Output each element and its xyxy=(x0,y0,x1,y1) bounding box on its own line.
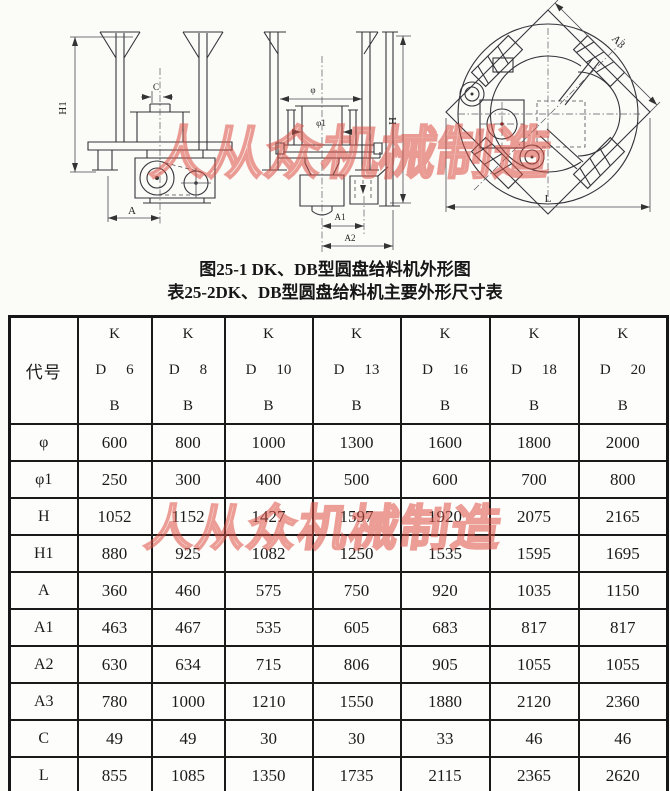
value-cell: 535 xyxy=(225,609,313,646)
value-cell: 800 xyxy=(152,424,225,461)
value-cell: 2075 xyxy=(490,498,579,535)
value-cell: 905 xyxy=(401,646,490,683)
value-cell: 1000 xyxy=(225,424,313,461)
value-cell: 605 xyxy=(313,609,401,646)
value-cell: 1350 xyxy=(225,757,313,791)
value-cell: 1427 xyxy=(225,498,313,535)
model-series-k: K xyxy=(153,326,224,343)
value-cell: 880 xyxy=(78,535,152,572)
value-cell: 920 xyxy=(401,572,490,609)
value-cell: 1735 xyxy=(313,757,401,791)
value-cell: 634 xyxy=(152,646,225,683)
table-row: H188092510821250153515951695 xyxy=(10,535,668,572)
model-series-k: K xyxy=(79,326,151,343)
model-size: 18 xyxy=(542,362,557,379)
model-header-cell: KD13B xyxy=(313,317,401,425)
value-cell: 1595 xyxy=(490,535,579,572)
row-label-cell: A xyxy=(10,572,78,609)
value-cell: 817 xyxy=(490,609,579,646)
model-series-d: D xyxy=(246,362,257,379)
table-row: H1052115214271597192020752165 xyxy=(10,498,668,535)
model-series-d: D xyxy=(422,362,433,379)
value-cell: 600 xyxy=(401,461,490,498)
model-series-b: B xyxy=(226,398,312,415)
value-cell: 2360 xyxy=(579,683,668,720)
table-row: φ1250300400500600700800 xyxy=(10,461,668,498)
row-label-cell: H xyxy=(10,498,78,535)
dim-label-h: H xyxy=(387,117,399,125)
dim-label-a1: A1 xyxy=(335,212,346,222)
model-series-b: B xyxy=(153,398,224,415)
model-size: 13 xyxy=(364,362,379,379)
top-view-drawing: A3 L xyxy=(446,0,660,214)
document-page: H1 C A φ φ1 H xyxy=(0,0,670,791)
value-cell: 1880 xyxy=(401,683,490,720)
value-cell: 30 xyxy=(225,720,313,757)
model-series-k: K xyxy=(314,326,400,343)
value-cell: 683 xyxy=(401,609,490,646)
value-cell: 1000 xyxy=(152,683,225,720)
value-cell: 1920 xyxy=(401,498,490,535)
value-cell: 1210 xyxy=(225,683,313,720)
dim-label-c: C xyxy=(153,82,159,92)
value-cell: 1150 xyxy=(579,572,668,609)
model-series-k: K xyxy=(226,326,312,343)
value-cell: 500 xyxy=(313,461,401,498)
front-view-drawing: H1 C A xyxy=(57,32,232,224)
value-cell: 575 xyxy=(225,572,313,609)
value-cell: 1550 xyxy=(313,683,401,720)
side-view-drawing: φ φ1 H A1 A2 xyxy=(262,32,411,254)
model-size: 16 xyxy=(453,362,468,379)
row-label-cell: C xyxy=(10,720,78,757)
table-caption: 表25-2DK、DB型圆盘给料机主要外形尺寸表 xyxy=(0,281,670,304)
value-cell: 1695 xyxy=(579,535,668,572)
model-series-d: D xyxy=(600,362,611,379)
value-cell: 1535 xyxy=(401,535,490,572)
value-cell: 1085 xyxy=(152,757,225,791)
value-cell: 33 xyxy=(401,720,490,757)
table-row: C49493030334646 xyxy=(10,720,668,757)
model-series-d: D xyxy=(95,362,106,379)
table-row: A3780100012101550188021202360 xyxy=(10,683,668,720)
value-cell: 1600 xyxy=(401,424,490,461)
value-cell: 630 xyxy=(78,646,152,683)
row-label-cell: L xyxy=(10,757,78,791)
model-header-cell: KD16B xyxy=(401,317,490,425)
model-series-b: B xyxy=(580,398,667,415)
value-cell: 2120 xyxy=(490,683,579,720)
value-cell: 1250 xyxy=(313,535,401,572)
table-row: L855108513501735211523652620 xyxy=(10,757,668,791)
dim-label-h1: H1 xyxy=(57,101,69,114)
model-series-k: K xyxy=(580,326,667,343)
table-header-row: 代号 KD6BKD8BKD10BKD13BKD16BKD18BKD20B xyxy=(10,317,668,425)
dim-label-a2: A2 xyxy=(345,233,356,243)
value-cell: 1800 xyxy=(490,424,579,461)
value-cell: 1035 xyxy=(490,572,579,609)
value-cell: 49 xyxy=(152,720,225,757)
value-cell: 46 xyxy=(579,720,668,757)
value-cell: 360 xyxy=(78,572,152,609)
model-size: 20 xyxy=(631,362,646,379)
model-series-d: D xyxy=(334,362,345,379)
value-cell: 806 xyxy=(313,646,401,683)
value-cell: 715 xyxy=(225,646,313,683)
value-cell: 30 xyxy=(313,720,401,757)
value-cell: 1082 xyxy=(225,535,313,572)
dim-label-phi: φ xyxy=(310,85,315,95)
figure-caption: 图25-1 DK、DB型圆盘给料机外形图 xyxy=(0,258,670,281)
table-row: A263063471580690510551055 xyxy=(10,646,668,683)
value-cell: 1055 xyxy=(579,646,668,683)
row-label-cell: φ xyxy=(10,424,78,461)
dimensions-table: 代号 KD6BKD8BKD10BKD13BKD16BKD18BKD20B φ60… xyxy=(8,315,669,791)
model-series-k: K xyxy=(402,326,489,343)
value-cell: 2165 xyxy=(579,498,668,535)
model-series-b: B xyxy=(79,398,151,415)
model-series-d: D xyxy=(511,362,522,379)
value-cell: 1300 xyxy=(313,424,401,461)
model-series-k: K xyxy=(491,326,578,343)
value-cell: 800 xyxy=(579,461,668,498)
row-label-cell: A3 xyxy=(10,683,78,720)
value-cell: 700 xyxy=(490,461,579,498)
captions: 图25-1 DK、DB型圆盘给料机外形图 表25-2DK、DB型圆盘给料机主要外… xyxy=(0,258,670,304)
value-cell: 46 xyxy=(490,720,579,757)
dim-label-phi1: φ1 xyxy=(316,118,326,128)
value-cell: 400 xyxy=(225,461,313,498)
model-series-d: D xyxy=(169,362,180,379)
value-cell: 817 xyxy=(579,609,668,646)
machine-frame xyxy=(262,32,400,206)
value-cell: 1152 xyxy=(152,498,225,535)
value-cell: 2365 xyxy=(490,757,579,791)
code-header-cell: 代号 xyxy=(10,317,78,425)
value-cell: 460 xyxy=(152,572,225,609)
value-cell: 750 xyxy=(313,572,401,609)
value-cell: 1055 xyxy=(490,646,579,683)
model-header-cell: KD10B xyxy=(225,317,313,425)
value-cell: 467 xyxy=(152,609,225,646)
model-header-cell: KD20B xyxy=(579,317,668,425)
row-label-cell: H1 xyxy=(10,535,78,572)
value-cell: 1597 xyxy=(313,498,401,535)
value-cell: 2115 xyxy=(401,757,490,791)
value-cell: 855 xyxy=(78,757,152,791)
model-series-b: B xyxy=(402,398,489,415)
value-cell: 925 xyxy=(152,535,225,572)
value-cell: 2000 xyxy=(579,424,668,461)
row-label-cell: φ1 xyxy=(10,461,78,498)
model-size: 6 xyxy=(126,362,134,379)
model-header-cell: KD8B xyxy=(152,317,225,425)
row-label-cell: A1 xyxy=(10,609,78,646)
value-cell: 300 xyxy=(152,461,225,498)
value-cell: 780 xyxy=(78,683,152,720)
hanger-frame xyxy=(100,32,223,150)
discharge-chute xyxy=(350,167,388,204)
model-header-cell: KD18B xyxy=(490,317,579,425)
model-header-cell: KD6B xyxy=(78,317,152,425)
dim-label-a3: A3 xyxy=(609,33,627,51)
model-series-b: B xyxy=(314,398,400,415)
value-cell: 250 xyxy=(78,461,152,498)
value-cell: 49 xyxy=(78,720,152,757)
model-series-b: B xyxy=(491,398,578,415)
table-row: φ60080010001300160018002000 xyxy=(10,424,668,461)
dim-label-a: A xyxy=(128,205,136,217)
value-cell: 463 xyxy=(78,609,152,646)
model-size: 8 xyxy=(200,362,208,379)
table-row: A1463467535605683817817 xyxy=(10,609,668,646)
row-label-cell: A2 xyxy=(10,646,78,683)
table-row: A36046057575092010351150 xyxy=(10,572,668,609)
value-cell: 600 xyxy=(78,424,152,461)
value-cell: 2620 xyxy=(579,757,668,791)
value-cell: 1052 xyxy=(78,498,152,535)
outline-figure: H1 C A φ φ1 H xyxy=(0,0,670,258)
model-size: 10 xyxy=(276,362,291,379)
dim-label-l: L xyxy=(545,193,552,205)
